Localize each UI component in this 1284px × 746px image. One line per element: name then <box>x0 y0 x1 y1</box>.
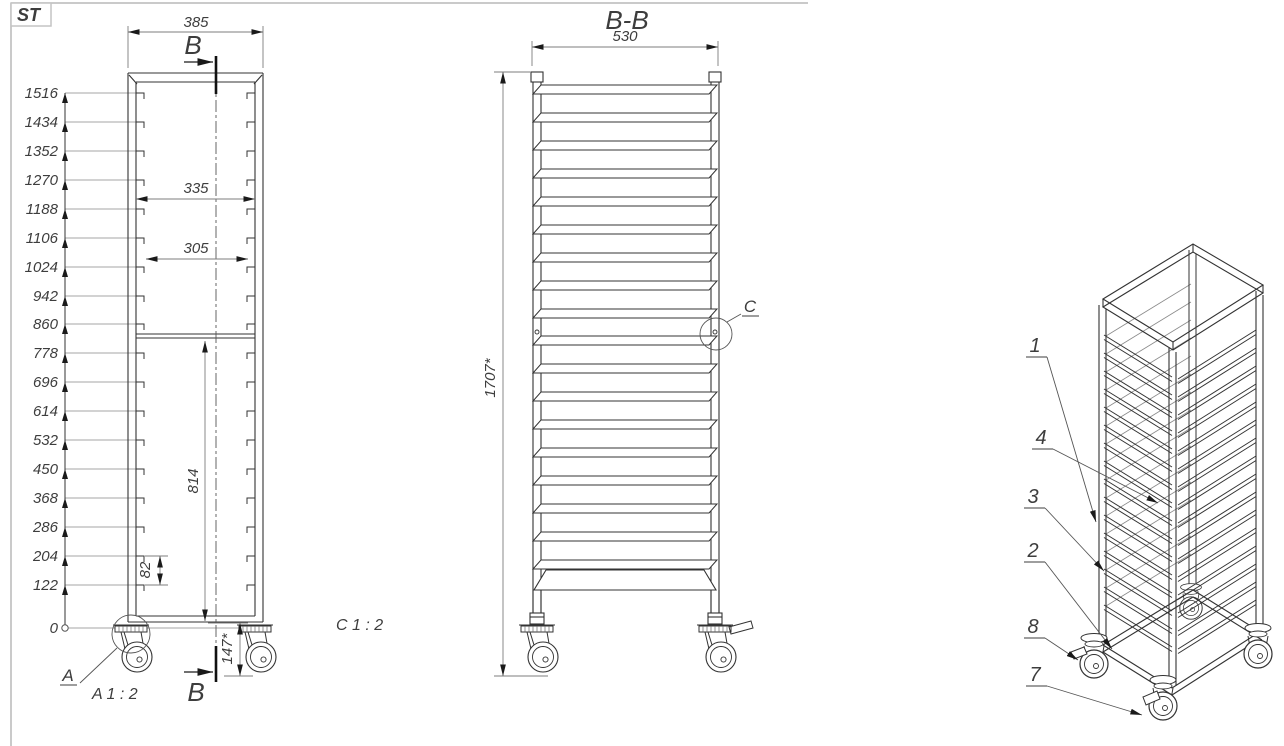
left-view: 1516 1434 1352 1270 1188 1106 1024 942 8… <box>25 14 384 707</box>
level-label: 286 <box>32 519 59 536</box>
level-label: 1188 <box>26 201 59 218</box>
level-label: 122 <box>33 577 59 594</box>
detail-c-label: C <box>744 297 757 316</box>
level-label: 450 <box>33 461 59 478</box>
dim-305: 305 <box>183 240 209 257</box>
level-label: 0 <box>50 620 59 637</box>
dim-530: 530 <box>612 28 638 45</box>
dim-385: 385 <box>183 14 209 31</box>
detail-a-scale: A 1 : 2 <box>91 686 138 703</box>
dim-147: 147* <box>219 632 236 664</box>
section-arrow-label-bottom: B <box>187 677 204 707</box>
logo-box: ST <box>11 3 51 26</box>
level-label: 368 <box>33 490 59 507</box>
level-label: 614 <box>33 403 58 420</box>
level-label: 860 <box>33 316 59 333</box>
detail-a-label: A <box>61 666 73 685</box>
section-arrow-label-top: B <box>184 30 201 60</box>
level-extension-lines <box>65 93 245 628</box>
dim-82: 82 <box>137 561 154 578</box>
level-label: 1434 <box>25 114 58 131</box>
detail-c-scale: C 1 : 2 <box>336 617 383 634</box>
caster-left-iso <box>1080 634 1108 679</box>
tray-rails <box>533 85 717 569</box>
callout-2: 2 <box>1026 540 1038 562</box>
level-label: 1106 <box>26 230 59 247</box>
caster-left-section <box>519 625 558 672</box>
dim-335: 335 <box>183 180 209 197</box>
level-label: 204 <box>32 548 58 565</box>
callout-8: 8 <box>1027 616 1038 638</box>
section-bottom-frame <box>530 570 722 624</box>
level-label: 942 <box>33 288 59 305</box>
logo-text: ST <box>17 5 42 25</box>
level-label: 1024 <box>25 259 58 276</box>
caster-right-iso <box>1244 624 1272 669</box>
level-label: 1270 <box>25 172 59 189</box>
level-labels: 1516 1434 1352 1270 1188 1106 1024 942 8… <box>25 85 59 637</box>
level-label: 1516 <box>25 85 59 102</box>
rivet-hole-left <box>535 330 539 334</box>
level-label: 696 <box>33 374 59 391</box>
ordinate-dimension-chain <box>62 93 68 631</box>
drawing-canvas: ST 1516 <box>0 0 1284 746</box>
caster-right-front-view <box>237 625 276 672</box>
iso-view: 1 4 3 2 8 7 <box>1024 244 1272 720</box>
rivet-hole-right <box>713 330 717 334</box>
section-view-bb: B-B 530 1707* <box>482 5 759 676</box>
level-label: 1352 <box>25 143 59 160</box>
callout-4: 4 <box>1035 427 1046 449</box>
iso-top-frame <box>1103 244 1263 350</box>
callout-7: 7 <box>1029 664 1041 686</box>
level-label: 778 <box>33 345 59 362</box>
shelf-slot-ticks <box>137 93 255 591</box>
iso-rails-back <box>1106 284 1191 606</box>
callout-1: 1 <box>1029 335 1040 357</box>
dim-814: 814 <box>185 468 202 493</box>
brake-lever-section <box>729 621 753 634</box>
dim-1707: 1707* <box>482 357 499 397</box>
callout-3: 3 <box>1027 486 1038 508</box>
section-line-b: B B <box>184 30 216 707</box>
rack-outline <box>128 73 263 622</box>
cad-sheet: ST 1516 <box>0 0 1284 746</box>
level-label: 532 <box>33 432 59 449</box>
